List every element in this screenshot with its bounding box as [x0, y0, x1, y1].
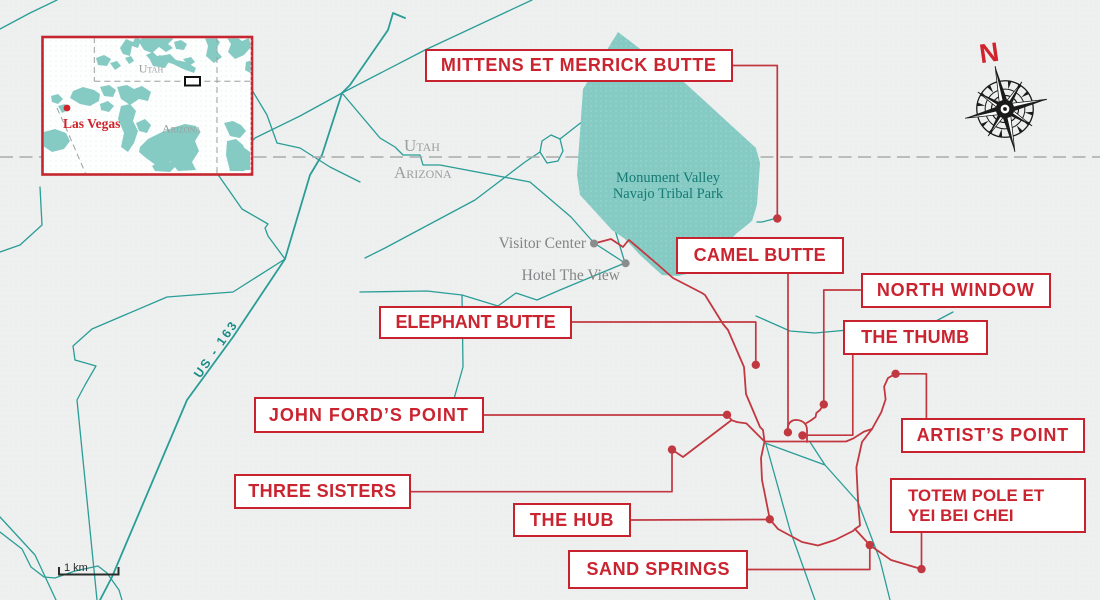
svg-text:Visitor Center: Visitor Center [499, 235, 587, 252]
svg-text:Arizona: Arizona [394, 163, 452, 182]
svg-text:Utah: Utah [139, 62, 164, 76]
svg-text:Las Vegas: Las Vegas [63, 116, 120, 131]
svg-text:1 km: 1 km [64, 562, 88, 574]
svg-text:Navajo Tribal Park: Navajo Tribal Park [613, 186, 724, 202]
svg-text:Hotel The View: Hotel The View [522, 267, 621, 284]
svg-text:Utah: Utah [404, 136, 440, 155]
svg-text:N: N [977, 37, 1000, 69]
svg-text:Monument Valley: Monument Valley [616, 170, 721, 186]
svg-text:Arizona: Arizona [162, 122, 201, 136]
